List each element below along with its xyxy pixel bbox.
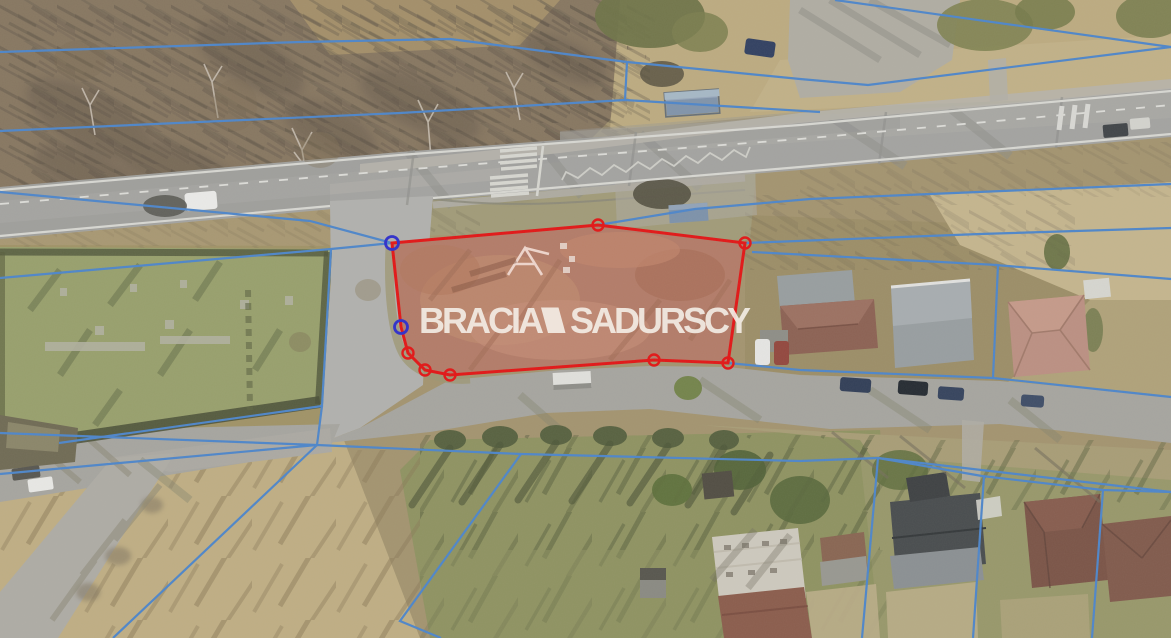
svg-text:SADURSCY: SADURSCY [570, 300, 751, 341]
svg-text:BRACIA: BRACIA [419, 300, 544, 341]
